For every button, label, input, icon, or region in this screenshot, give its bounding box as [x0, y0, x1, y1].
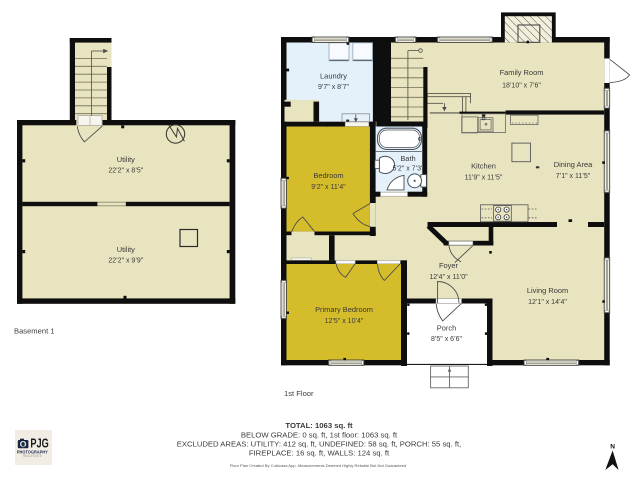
svg-text:BELOW GRADE: 0 sq. ft, 1st flo: BELOW GRADE: 0 sq. ft, 1st floor: 1063 s…	[241, 430, 398, 439]
svg-text:FIREPLACE: 16 sq. ft, WALLS: 1: FIREPLACE: 16 sq. ft, WALLS: 124 sq. ft	[249, 448, 390, 457]
svg-text:Floor Plan Created By Cubicasa: Floor Plan Created By Cubicasa App. Meas…	[230, 463, 407, 468]
svg-text:12’1" x 14’4": 12’1" x 14’4"	[528, 299, 567, 306]
svg-text:Utility: Utility	[117, 245, 135, 254]
svg-text:18’10" x 7’6": 18’10" x 7’6"	[502, 82, 541, 89]
svg-text:Primary Bedroom: Primary Bedroom	[315, 305, 373, 314]
svg-text:Bedroom: Bedroom	[313, 171, 343, 180]
svg-text:Bath: Bath	[400, 154, 415, 163]
svg-text:Basement 1: Basement 1	[14, 327, 55, 336]
svg-text:Porch: Porch	[437, 324, 456, 333]
svg-text:Kitchen: Kitchen	[471, 162, 496, 171]
svg-text:Laundry: Laundry	[320, 71, 347, 80]
svg-text:REAL ESTATE: REAL ESTATE	[23, 454, 42, 458]
svg-text:Utility: Utility	[117, 155, 135, 164]
svg-text:7’1" x 11’5": 7’1" x 11’5"	[556, 173, 591, 180]
svg-text:TOTAL: 1063 sq. ft: TOTAL: 1063 sq. ft	[285, 421, 353, 430]
svg-text:5’2" x 7’3": 5’2" x 7’3"	[392, 166, 424, 173]
svg-text:Family Room: Family Room	[500, 68, 544, 77]
svg-text:12’4" x 11’0": 12’4" x 11’0"	[429, 274, 468, 281]
svg-text:Dining Area: Dining Area	[554, 160, 593, 169]
svg-text:EXCLUDED AREAS: UTILITY: 412 s: EXCLUDED AREAS: UTILITY: 412 sq. ft, UND…	[177, 439, 462, 448]
svg-text:11’9" x 11’5": 11’9" x 11’5"	[465, 174, 503, 181]
svg-text:9’7" x 8’7": 9’7" x 8’7"	[318, 84, 350, 91]
svg-text:N: N	[610, 444, 615, 451]
svg-text:22’2" x 9’9": 22’2" x 9’9"	[108, 258, 143, 265]
svg-text:8’5" x 6’6": 8’5" x 6’6"	[431, 336, 463, 343]
svg-text:22’2" x 8’5": 22’2" x 8’5"	[108, 168, 143, 175]
svg-text:Living Room: Living Room	[527, 286, 568, 295]
svg-text:Foyer: Foyer	[439, 261, 459, 270]
svg-text:12’5" x 10’4": 12’5" x 10’4"	[325, 318, 364, 325]
svg-text:1st Floor: 1st Floor	[284, 389, 314, 398]
svg-text:9’2" x 11’4": 9’2" x 11’4"	[311, 184, 346, 191]
